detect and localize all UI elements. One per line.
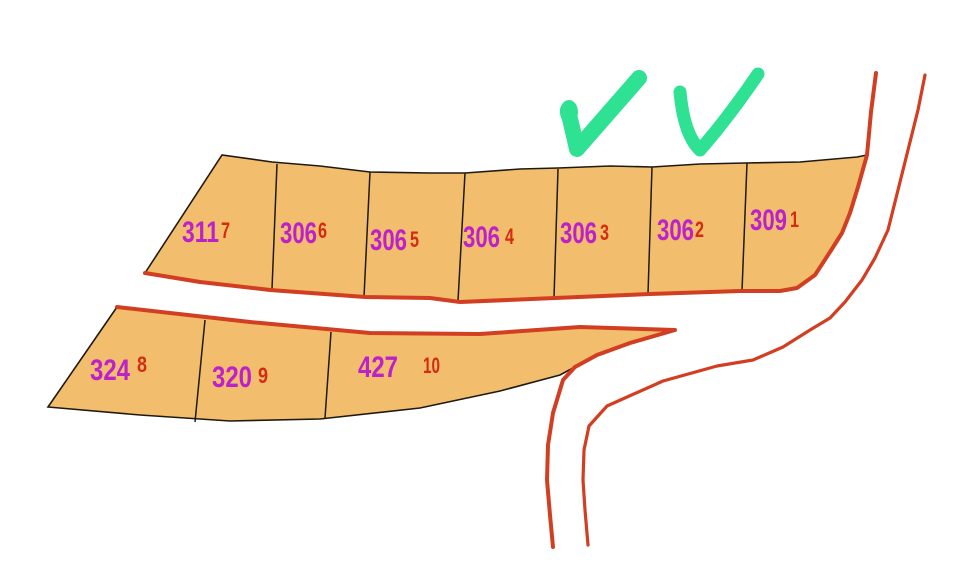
parcel-sub-number: 5 — [410, 227, 419, 252]
parcel-number: 309 — [750, 204, 787, 237]
parcel-sub-number: 9 — [258, 363, 268, 388]
parcel-sub-number: 1 — [790, 207, 799, 232]
parcel-number: 306 — [657, 214, 694, 247]
parcel-number: 311 — [182, 216, 219, 249]
parcel-sub-number: 10 — [423, 353, 440, 378]
parcel-number: 320 — [212, 361, 252, 394]
parcel-number: 306 — [280, 217, 317, 250]
parcel-number: 306 — [463, 221, 500, 254]
checkmark-blob — [560, 100, 578, 124]
parcel-sub-number: 6 — [318, 218, 327, 243]
parcel-number: 324 — [90, 354, 130, 387]
parcel-sub-number: 7 — [221, 218, 230, 243]
parcel-sub-number: 8 — [137, 352, 147, 377]
cadastral-map: 311 7 306 6 306 5 306 4 306 3 306 2 309 … — [0, 0, 975, 570]
parcel-number: 306 — [370, 224, 407, 257]
parcel-number: 427 — [358, 351, 398, 384]
map-canvas: 311 7 306 6 306 5 306 4 306 3 306 2 309 … — [0, 0, 975, 570]
parcel-sub-number: 4 — [505, 224, 515, 249]
parcel-sub-number: 2 — [695, 217, 704, 242]
parcel-sub-number: 3 — [600, 220, 609, 245]
parcel-number: 306 — [560, 217, 597, 250]
